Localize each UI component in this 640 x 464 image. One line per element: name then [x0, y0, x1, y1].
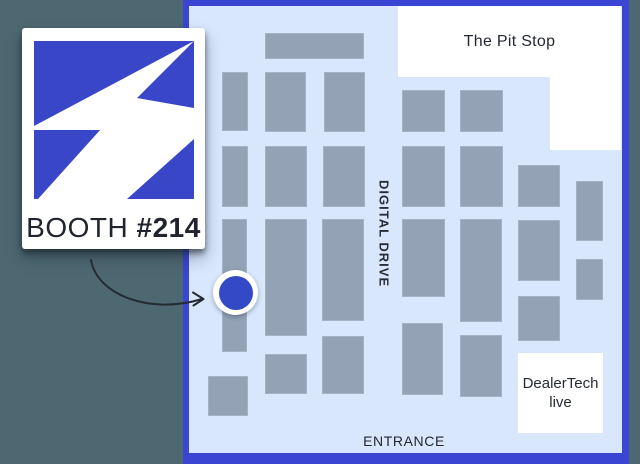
- the-pit-stop-label: The Pit Stop: [464, 33, 556, 51]
- booth-rect: [402, 146, 445, 207]
- booth-rect: [518, 296, 560, 341]
- lightning-bolt-logo: [34, 41, 194, 199]
- booth-rect: [518, 165, 560, 207]
- area-dealertech-live: DealerTech live: [518, 353, 603, 433]
- dealertech-label-line2: live: [549, 393, 572, 412]
- booth-rect: [222, 72, 248, 131]
- booth-word: BOOTH: [26, 212, 128, 243]
- booth-rect: [402, 323, 443, 395]
- booth-callout-card: BOOTH #214: [22, 28, 205, 249]
- area-the-pit-stop: The Pit Stop: [398, 6, 621, 77]
- booth-rect: [265, 354, 307, 394]
- page-background: { "colors": { "background": "#4e6872", "…: [0, 0, 640, 464]
- label-entrance: ENTRANCE: [349, 433, 459, 449]
- booth-rect: [576, 259, 603, 300]
- booth-rect: [265, 33, 364, 59]
- booth-rect: [460, 90, 503, 132]
- booth-rect: [518, 220, 560, 281]
- booth-rect: [402, 90, 445, 132]
- booth-rect: [460, 219, 502, 322]
- booth-rect: [460, 335, 502, 397]
- lightning-bolt-icon: [34, 41, 194, 199]
- booth-rect: [576, 181, 603, 241]
- label-digital-drive: DIGITAL DRIVE: [374, 184, 394, 284]
- booth-rect: [460, 146, 503, 207]
- booth-rect: [265, 146, 307, 207]
- dealertech-label-line1: DealerTech: [523, 374, 599, 393]
- booth-rect: [322, 336, 364, 394]
- booth-rect: [222, 146, 248, 207]
- booth-rect: [265, 219, 307, 336]
- booth-rect: [323, 146, 365, 207]
- booth-number-label: BOOTH #214: [22, 212, 205, 244]
- booth-location-dot-icon: [219, 276, 253, 310]
- booth-location-marker[interactable]: [213, 270, 258, 315]
- booth-number: #214: [137, 212, 201, 243]
- booth-rect: [322, 219, 364, 321]
- booth-rect: [265, 72, 306, 132]
- booth-rect: [402, 219, 445, 297]
- booth-rect: [324, 72, 365, 132]
- booth-rect: [208, 376, 248, 416]
